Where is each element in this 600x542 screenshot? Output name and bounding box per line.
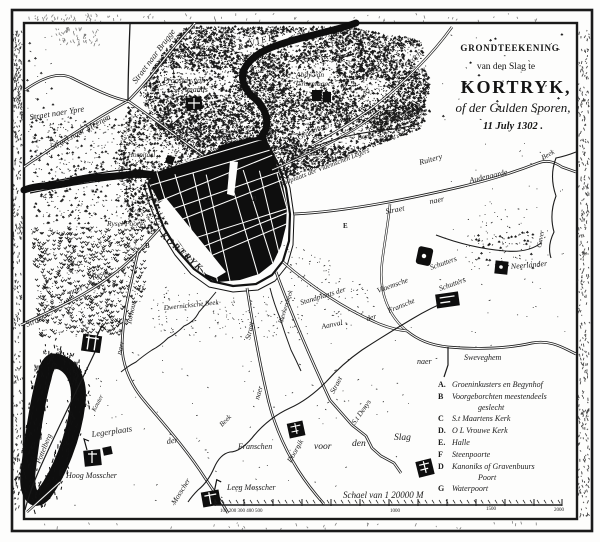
svg-text:Leeg Mosscher: Leeg Mosscher	[226, 483, 277, 492]
svg-text:B: B	[438, 392, 444, 401]
svg-text:geslecht: geslecht	[478, 403, 505, 412]
svg-text:2000: 2000	[554, 508, 565, 513]
svg-text:1000: 1000	[390, 509, 401, 514]
svg-text:1500: 1500	[486, 507, 497, 512]
svg-text:Sweveghem: Sweveghem	[464, 353, 502, 362]
svg-text:den: den	[352, 439, 366, 449]
svg-text:Voorgeborchten meestendeels: Voorgeborchten meestendeels	[452, 392, 547, 401]
svg-text:Rysel Poort: Rysel Poort	[106, 219, 143, 228]
svg-text:Proostdy van: Proostdy van	[162, 76, 205, 85]
svg-text:S.t Maartens Kerk: S.t Maartens Kerk	[452, 414, 511, 423]
svg-text:Waterpoort: Waterpoort	[452, 484, 489, 493]
svg-text:Schael van 1 20000 M: Schael van 1 20000 M	[343, 490, 424, 500]
svg-text:D.: D.	[438, 426, 446, 435]
svg-text:B: B	[145, 242, 150, 250]
svg-text:voor: voor	[314, 442, 332, 452]
svg-text:A.: A.	[438, 380, 446, 389]
svg-text:GRONDTEEKENING: GRONDTEEKENING	[460, 43, 559, 53]
svg-text:Hoog Mosscher: Hoog Mosscher	[65, 471, 118, 480]
svg-text:Poort: Poort	[477, 473, 497, 482]
svg-text:Hospitael: Hospitael	[127, 151, 155, 159]
svg-text:C: C	[438, 414, 444, 423]
svg-text:F: F	[438, 450, 443, 459]
svg-text:Franschen: Franschen	[237, 442, 272, 451]
svg-text:Abdy van: Abdy van	[295, 70, 324, 79]
svg-text:Slag: Slag	[394, 433, 411, 443]
svg-text:Steenpoorte: Steenpoorte	[452, 450, 491, 459]
svg-text:Groeninkusters en Begynhof: Groeninkusters en Begynhof	[452, 380, 545, 389]
svg-text:O L Vrouwe Kerk: O L Vrouwe Kerk	[452, 426, 508, 435]
svg-text:100 200 300 400 500: 100 200 300 400 500	[220, 509, 263, 514]
svg-text:Halle: Halle	[451, 438, 470, 447]
svg-text:Kanoniks of Gravenbuurs: Kanoniks of Gravenbuurs	[451, 462, 535, 471]
svg-text:of der Gulden Sporen,: of der Gulden Sporen,	[455, 100, 570, 115]
svg-text:S.t Amands: S.t Amands	[172, 85, 208, 94]
svg-text:E: E	[343, 222, 348, 230]
svg-text:Groeninge: Groeninge	[296, 79, 328, 88]
svg-text:KORTRYK,: KORTRYK,	[461, 77, 572, 97]
svg-text:11 July 1302 .: 11 July 1302 .	[483, 121, 543, 132]
svg-text:G: G	[438, 484, 444, 493]
svg-text:van den Slag te: van den Slag te	[477, 62, 535, 72]
svg-text:der: der	[166, 434, 179, 446]
svg-text:B: B	[252, 195, 257, 203]
svg-text:naer: naer	[417, 357, 433, 366]
svg-text:E.: E.	[438, 438, 445, 447]
svg-text:B: B	[176, 134, 181, 142]
svg-text:D: D	[438, 462, 444, 471]
